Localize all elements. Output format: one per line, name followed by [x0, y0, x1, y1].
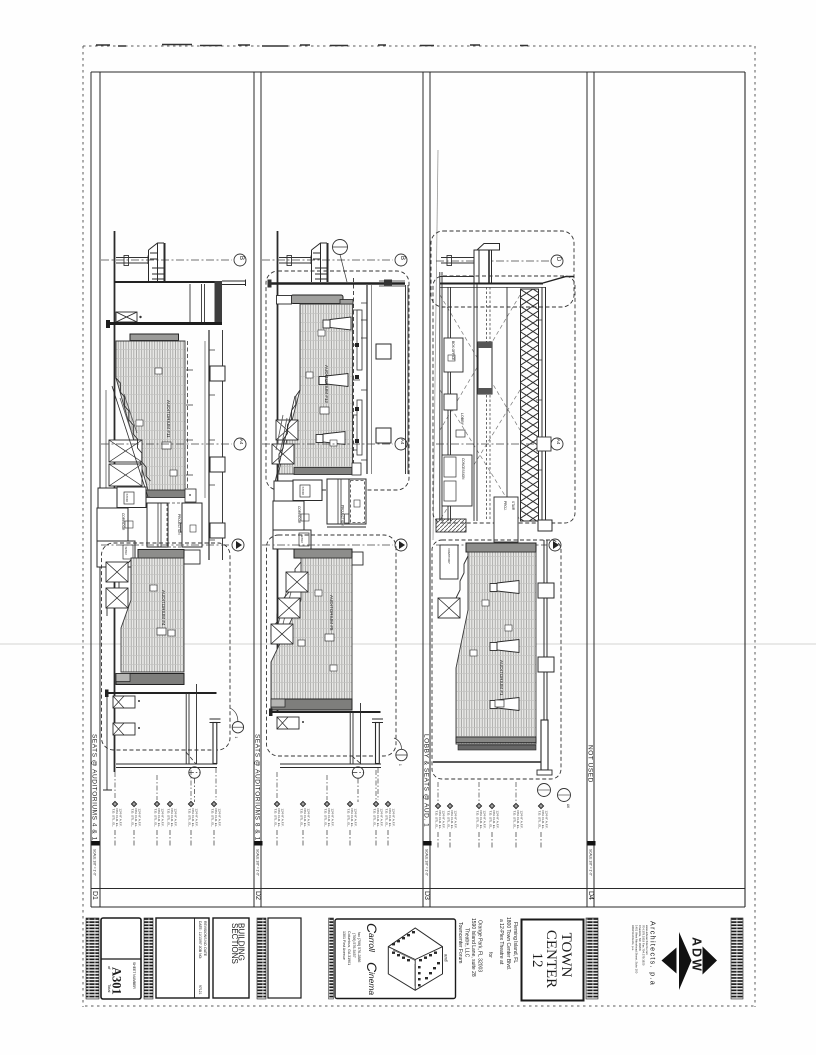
- svg-text:STOR: STOR: [125, 494, 129, 503]
- svg-text:SCALE 1/8" = 1'-0": SCALE 1/8" = 1'-0": [589, 849, 593, 876]
- svg-text:Orange Park, FL 32003: Orange Park, FL 32003: [477, 920, 483, 972]
- svg-text:D: D: [555, 257, 561, 262]
- svg-text:www.adwarchitects.com: www.adwarchitects.com: [645, 925, 649, 956]
- svg-text:Columbus, GA 31901: Columbus, GA 31901: [347, 931, 351, 965]
- svg-text:A4: A4: [239, 439, 244, 445]
- svg-text:CONCESSION: CONCESSION: [461, 458, 465, 480]
- svg-text:SCALE 1/8" = 1'-0": SCALE 1/8" = 1'-0": [425, 849, 429, 876]
- svg-text:A4: A4: [556, 439, 561, 445]
- svg-text:97121: 97121: [198, 985, 202, 995]
- svg-text:NOT USED: NOT USED: [587, 745, 594, 783]
- svg-text:1590 Island Lane, suite 28: 1590 Island Lane, suite 28: [470, 918, 476, 977]
- svg-text:Architects. p.a: Architects. p.a: [649, 921, 658, 986]
- svg-text:1301 First Avenue: 1301 First Avenue: [342, 931, 346, 960]
- svg-text:Towncenter Forum: Towncenter Forum: [457, 922, 463, 963]
- svg-text:SCALE 1/8" = 1'-0": SCALE 1/8" = 1'-0": [256, 849, 260, 876]
- svg-text:B: B: [399, 256, 405, 260]
- svg-text:PROJ.: PROJ.: [503, 501, 507, 511]
- svg-text:D3: D3: [423, 891, 430, 900]
- svg-text:LOBBY: LOBBY: [460, 413, 464, 426]
- svg-text:TOWN: TOWN: [558, 933, 574, 978]
- svg-text:SEATS @ AUDITORIUMS 4 & 11: SEATS @ AUDITORIUMS 4 & 11: [91, 734, 98, 844]
- svg-text:CORRIDOR: CORRIDOR: [121, 513, 125, 531]
- svg-text:1800 Town Center Blvd.: 1800 Town Center Blvd.: [505, 917, 511, 970]
- svg-text:B: B: [238, 256, 244, 260]
- svg-text:Total: Total: [107, 984, 112, 993]
- svg-text:LOBBY & SEATS @ AUD. 1: LOBBY & SEATS @ AUD. 1: [423, 734, 430, 827]
- svg-text:D1: D1: [91, 891, 98, 900]
- svg-text:STOR: STOR: [301, 487, 305, 496]
- svg-text:1401 West Morehead Street, Sui: 1401 West Morehead Street, Suite 100: [635, 925, 639, 974]
- svg-text:REVISIONS NO. DATE: REVISIONS NO. DATE: [203, 921, 207, 957]
- svg-text:12: 12: [529, 953, 545, 968]
- svg-text:1: 1: [234, 737, 238, 739]
- svg-text:fax (706) 576-2886: fax (706) 576-2886: [357, 932, 361, 962]
- svg-text:SHEET NUMBER: SHEET NUMBER: [132, 962, 136, 989]
- svg-text:Theatre, LLC: Theatre, LLC: [464, 928, 470, 958]
- svg-text:ADW Architects, p.a.: ADW Architects, p.a.: [631, 925, 635, 951]
- svg-text:SECTIONS: SECTIONS: [230, 923, 239, 964]
- svg-text:SPKR: SPKR: [124, 547, 128, 556]
- svg-text:D4: D4: [587, 891, 594, 900]
- svg-text:Charlotte, NC 28208: Charlotte, NC 28208: [638, 925, 642, 951]
- svg-text:SEATS @ AUDITORIUMS 8 & 12: SEATS @ AUDITORIUMS 8 & 12: [254, 734, 261, 845]
- svg-text:1: 1: [398, 764, 402, 766]
- svg-text:DATE: 11/13/97 JOB NO:: DATE: 11/13/97 JOB NO:: [198, 921, 202, 959]
- svg-text:PROJECTION: PROJECTION: [341, 505, 345, 526]
- svg-text:STAIR: STAIR: [511, 501, 515, 511]
- svg-text:704.379.1919 Fax 704.379.1920: 704.379.1919 Fax 704.379.1920: [642, 925, 646, 966]
- svg-text:inema: inema: [367, 972, 377, 995]
- svg-text:A6: A6: [566, 804, 570, 808]
- svg-text:ADW: ADW: [690, 937, 704, 973]
- svg-text:AUDITORIUM #11: AUDITORIUM #11: [166, 400, 171, 438]
- svg-text:BOX OFFICE: BOX OFFICE: [451, 341, 455, 360]
- svg-text:for: for: [487, 952, 493, 958]
- svg-text:CORRIDOR: CORRIDOR: [297, 506, 301, 524]
- svg-text:SCALE 1/8" = 1'-0": SCALE 1/8" = 1'-0": [93, 849, 97, 876]
- svg-text:D2: D2: [254, 891, 261, 900]
- svg-text:arroll: arroll: [367, 933, 377, 953]
- svg-text:SPKR: SPKR: [300, 535, 304, 544]
- svg-text:VOMITORY: VOMITORY: [447, 548, 451, 564]
- svg-text:AUDITORIUM #1: AUDITORIUM #1: [499, 660, 504, 696]
- svg-text:and: and: [444, 954, 449, 962]
- svg-text:(706) 576-5457: (706) 576-5457: [352, 933, 356, 958]
- svg-text:AUDITORIUM #4: AUDITORIUM #4: [161, 590, 166, 626]
- svg-text:AUDITORIUM #8: AUDITORIUM #8: [329, 595, 334, 631]
- svg-text:AUDITORIUM #12: AUDITORIUM #12: [324, 365, 329, 403]
- svg-text:Fleming Island, FL: Fleming Island, FL: [512, 922, 518, 963]
- svg-text:A4: A4: [400, 439, 405, 445]
- svg-text:a 12-Plex Theatre at: a 12-Plex Theatre at: [498, 919, 504, 965]
